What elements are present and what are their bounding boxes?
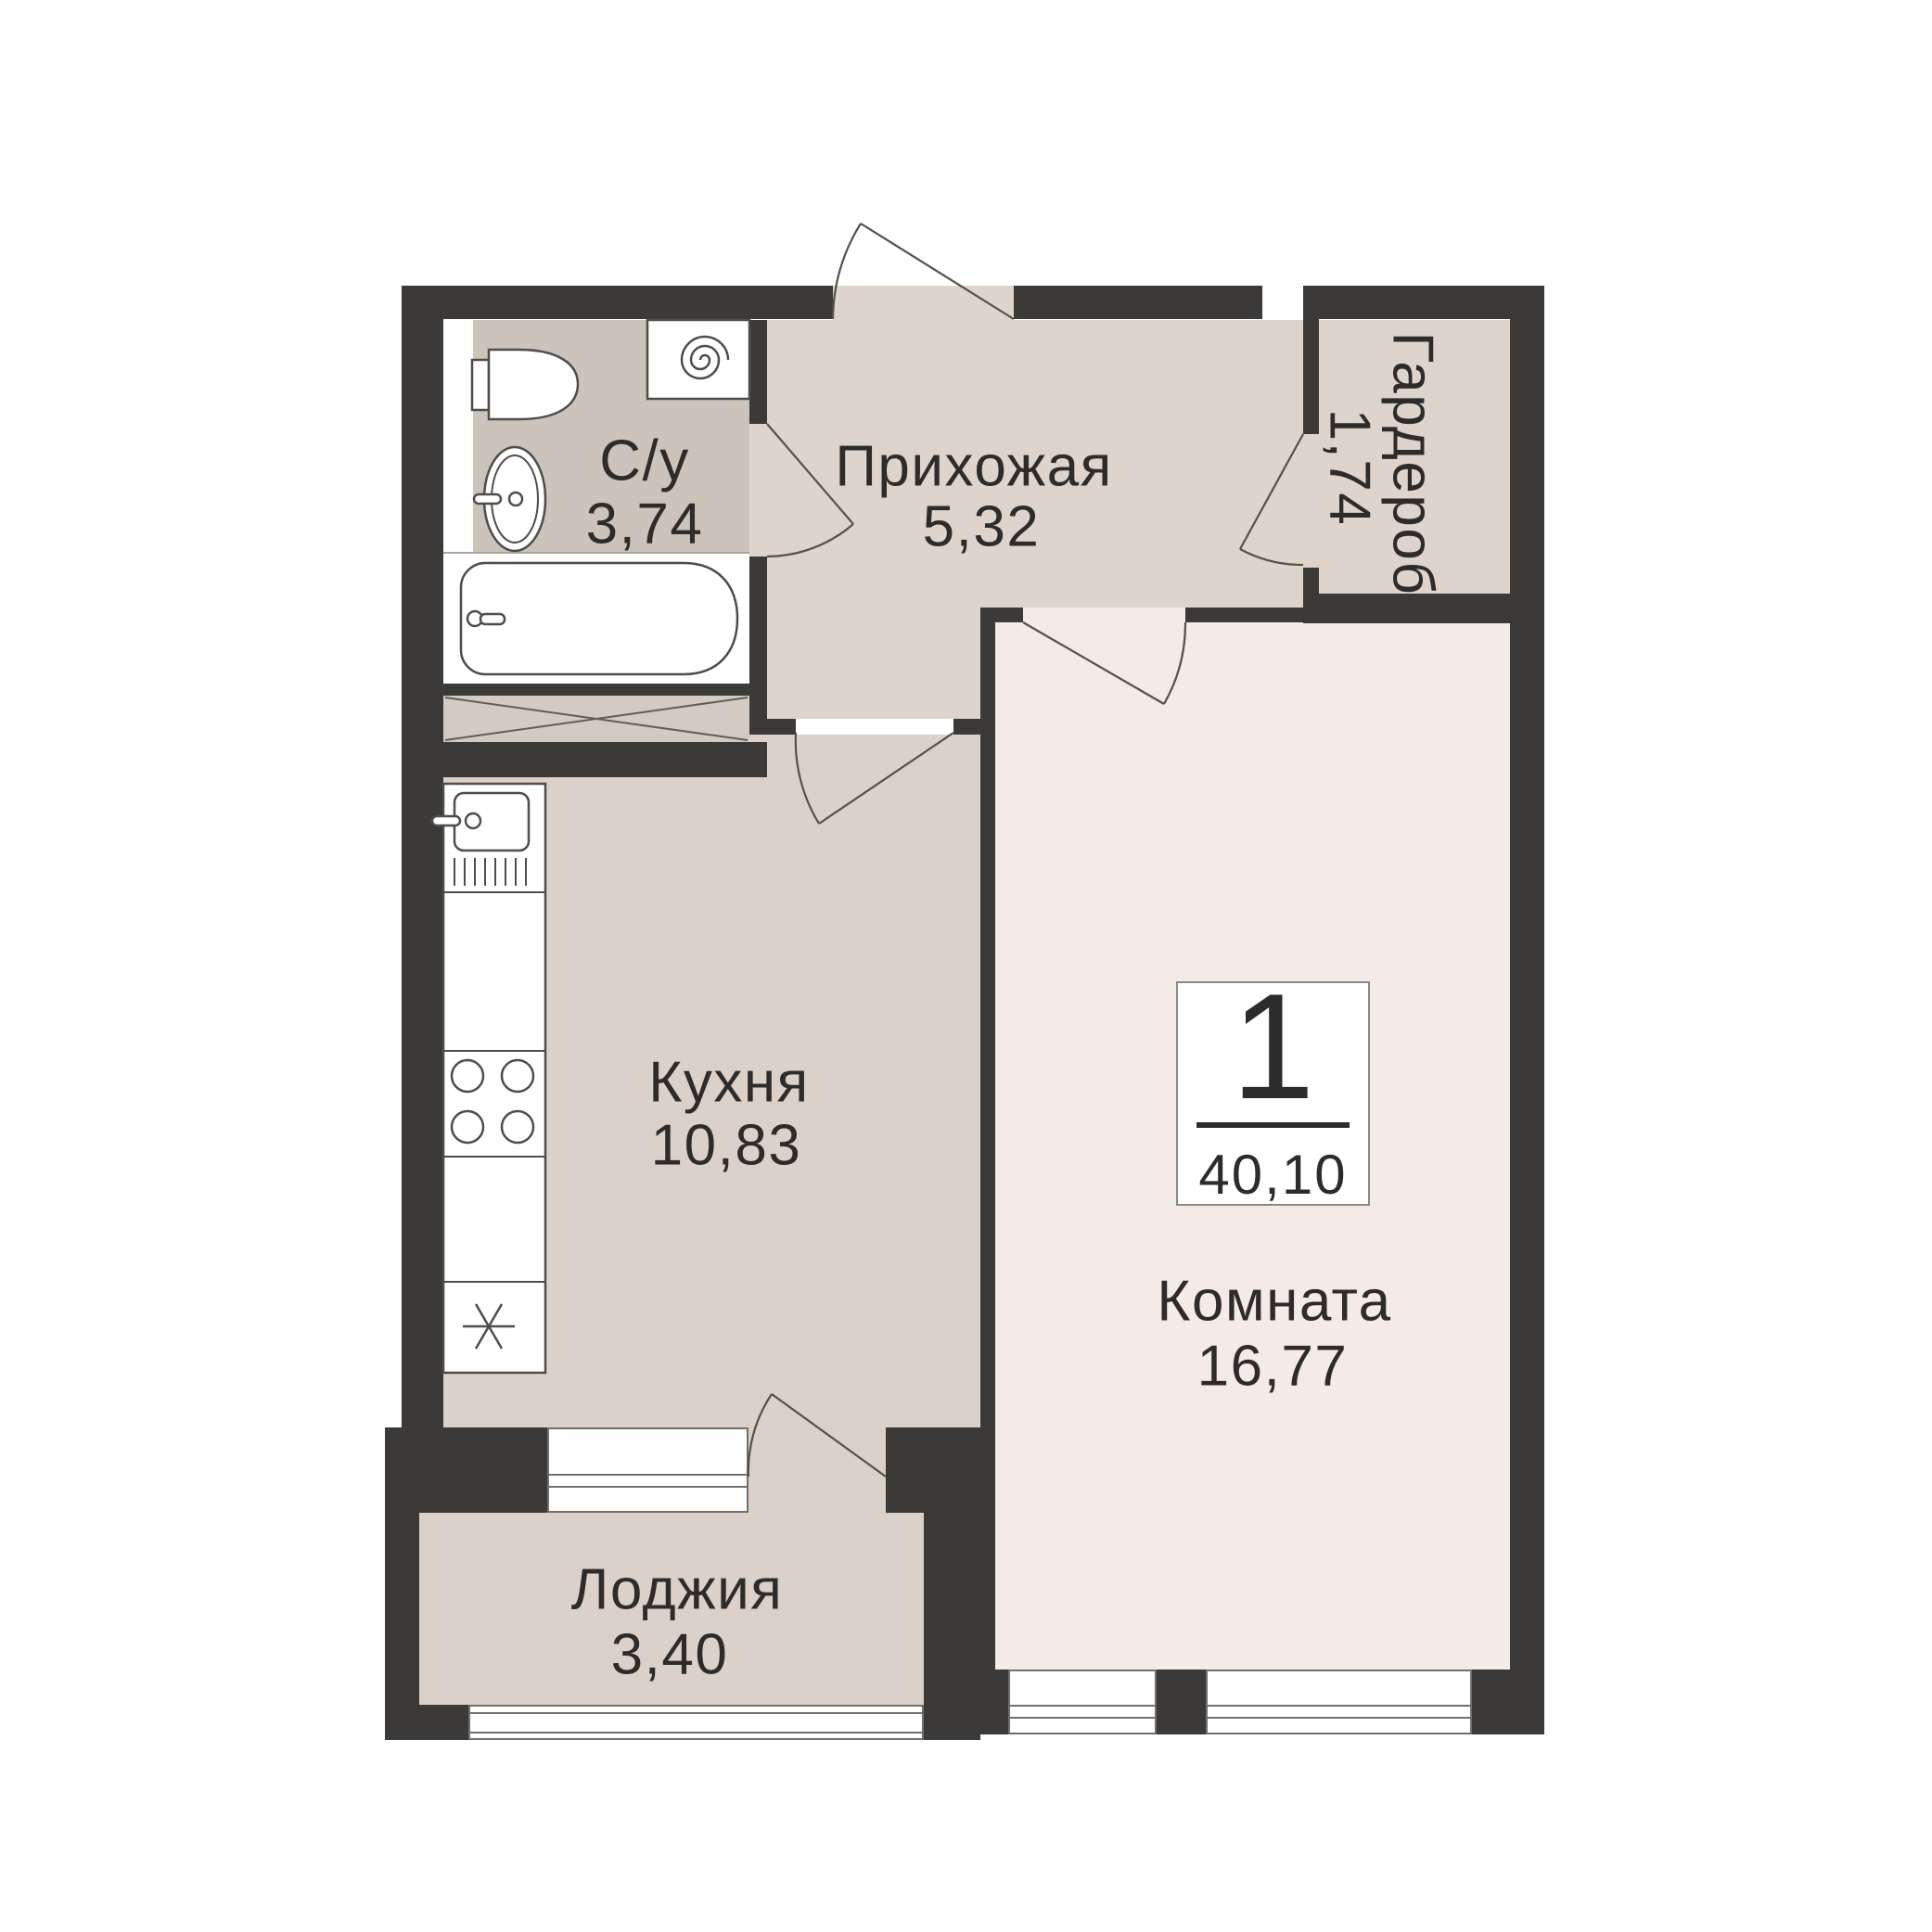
bathroom-name-label: С/у [599,429,690,494]
fixtures-layer [0,0,1932,1932]
wardrobe-door-swing-icon [1240,434,1303,565]
badge-divider [1196,1122,1350,1128]
washing-machine-icon [647,320,749,399]
shaft-hatch-icon [445,697,748,740]
total-area: 40,10 [1178,1143,1368,1207]
kitchen-name-label: Кухня [648,1050,809,1116]
hallway-area-label: 5,32 [923,494,1041,560]
balcony-door-swing-icon [748,1394,886,1477]
kitchen-area-label: 10,83 [651,1113,802,1179]
bathroom-area-label: 3,74 [586,492,704,557]
bathtub-icon [461,563,737,674]
bathroom-sink-icon [474,447,545,551]
apartment-summary-badge: 1 40,10 [1176,981,1370,1206]
living-room-door-swing-icon [1023,622,1185,704]
rooms-count: 1 [1178,972,1368,1122]
hallway-name-label: Прихожая [835,434,1112,500]
living-room-area-label: 16,77 [1197,1334,1349,1400]
wardrobe-name-label: Гардероб [1380,332,1446,596]
toilet-icon [472,350,578,419]
kitchen-door-swing-icon [796,733,953,824]
loggia-name-label: Лоджия [571,1557,784,1623]
loggia-area-label: 3,40 [611,1622,729,1688]
living-room-name-label: Комната [1157,1269,1391,1335]
wardrobe-area-label: 1,74 [1317,409,1383,527]
entrance-door-swing-icon [833,224,1014,319]
floor-plan: С/у 3,74 Прихожая 5,32 Гардероб 1,74 Кух… [0,0,1932,1932]
